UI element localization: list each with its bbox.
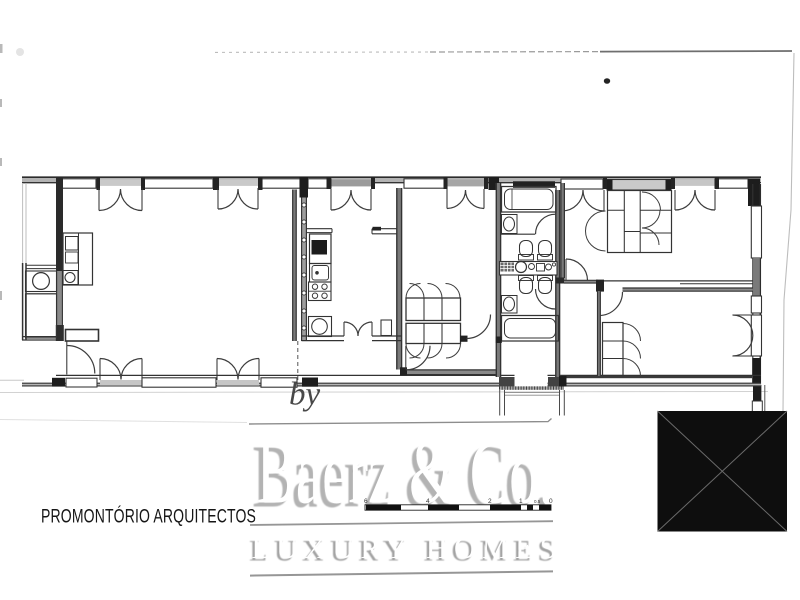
svg-text:0: 0 [549,498,553,505]
svg-text:by: by [289,377,321,413]
svg-text:LUXURY HOMES: LUXURY HOMES [252,532,565,565]
svg-text:4: 4 [426,498,430,505]
svg-text:1: 1 [519,498,523,505]
svg-text:0.5: 0.5 [534,499,541,504]
svg-text:2: 2 [488,498,492,505]
svg-text:PROMONTÓRIO ARQUITECTOS: PROMONTÓRIO ARQUITECTOS [41,506,256,528]
svg-text:6: 6 [364,498,368,505]
